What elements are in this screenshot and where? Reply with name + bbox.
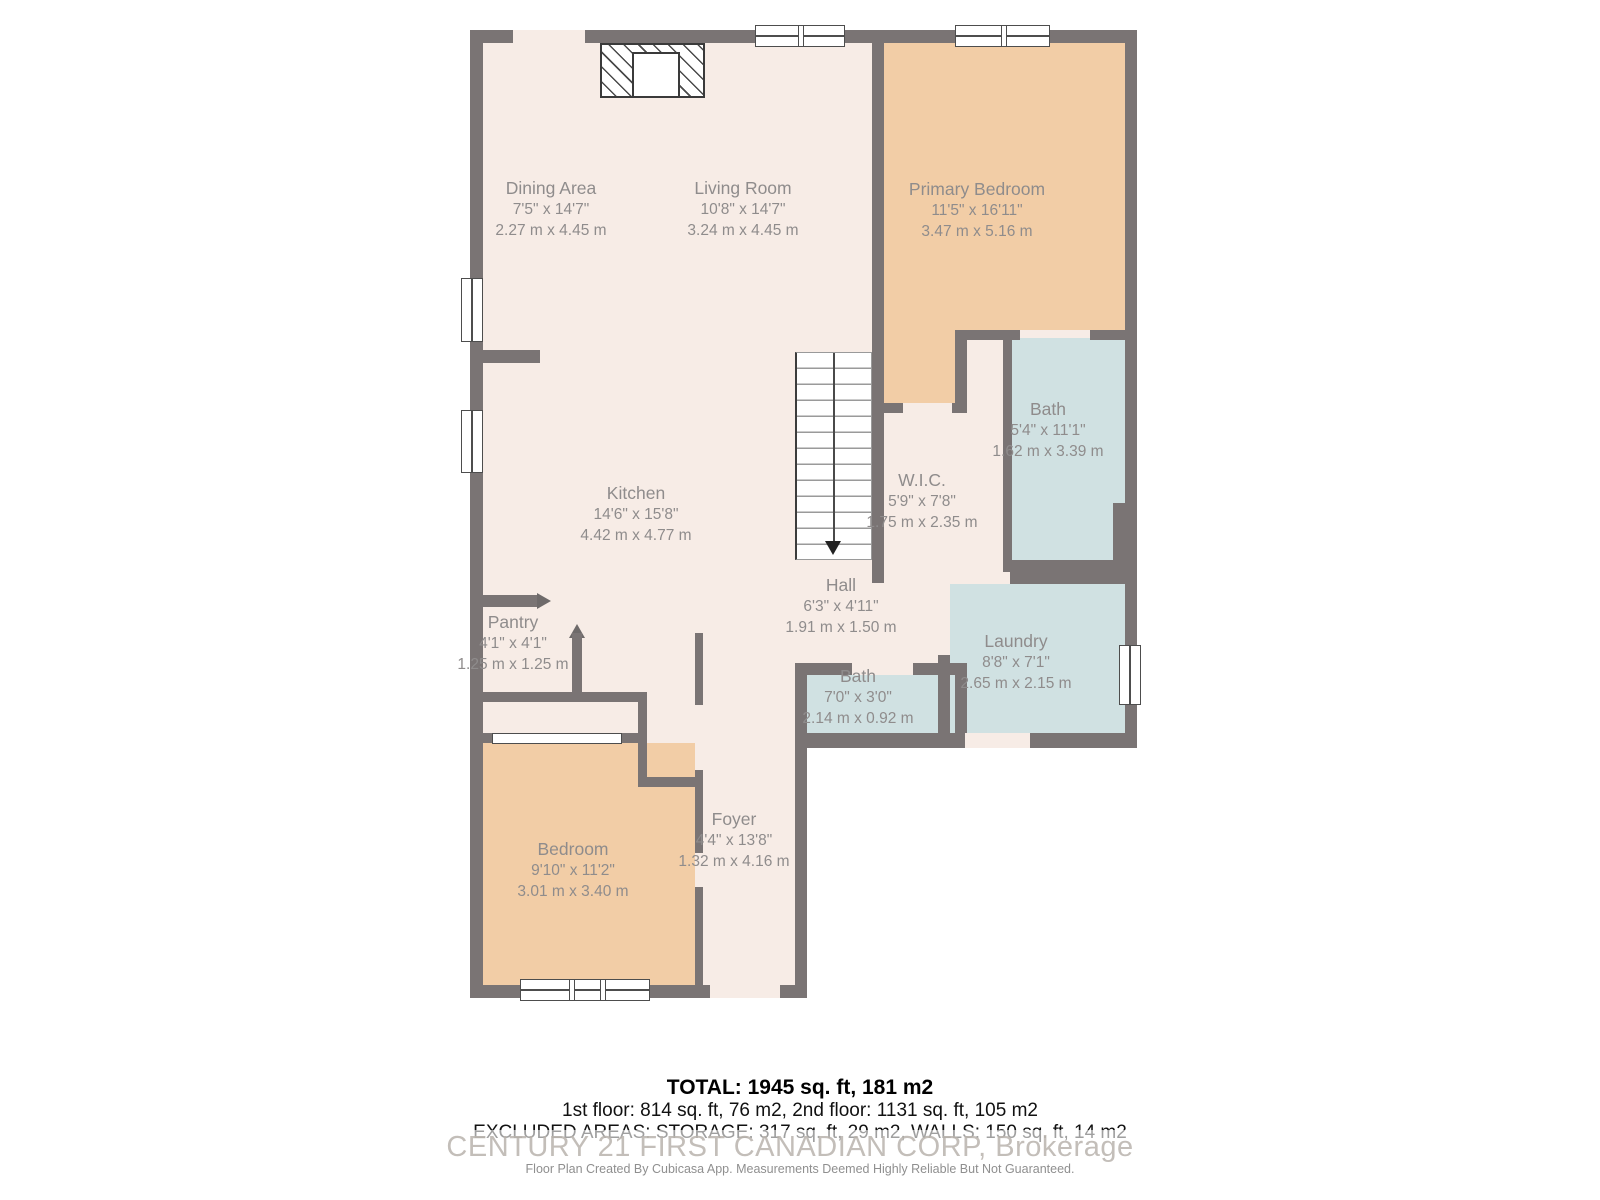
room-dim-m: 2.65 m x 2.15 m xyxy=(960,674,1071,695)
room-dim-ft: 7'5" x 14'7" xyxy=(495,200,606,221)
room-dim-ft: 5'4" x 11'1" xyxy=(992,421,1103,442)
room-name: Kitchen xyxy=(580,481,691,505)
room-label-bath-upper: Bath 5'4" x 11'1" 1.62 m x 3.39 m xyxy=(992,397,1103,462)
room-fill-primary-bedroom-ext xyxy=(884,330,955,403)
room-name: Pantry xyxy=(457,610,568,634)
room-fill-bath-upper-lower xyxy=(1012,503,1113,560)
room-dim-m: 3.47 m x 5.16 m xyxy=(909,222,1045,243)
room-label-wic: W.I.C. 5'9" x 7'8" 1.75 m x 2.35 m xyxy=(866,468,977,533)
floor-plan-canvas: Dining Area 7'5" x 14'7" 2.27 m x 4.45 m… xyxy=(0,0,1600,1200)
room-name: Dining Area xyxy=(495,176,606,200)
room-dim-m: 2.27 m x 4.45 m xyxy=(495,221,606,242)
window-symbol xyxy=(755,25,845,47)
room-name: W.I.C. xyxy=(866,468,977,492)
room-label-primary-bedroom: Primary Bedroom 11'5" x 16'11" 3.47 m x … xyxy=(909,177,1045,242)
room-name: Laundry xyxy=(960,629,1071,653)
room-label-pantry: Pantry 4'1" x 4'1" 1.25 m x 1.25 m xyxy=(457,610,568,675)
room-dim-m: 1.62 m x 3.39 m xyxy=(992,442,1103,463)
fireplace-firebox-icon xyxy=(632,52,680,98)
room-name: Bath xyxy=(802,664,913,688)
window-symbol xyxy=(1119,645,1141,705)
window-symbol xyxy=(520,979,650,1001)
staircase xyxy=(795,352,872,560)
room-name: Foyer xyxy=(678,807,789,831)
room-dim-m: 1.32 m x 4.16 m xyxy=(678,852,789,873)
room-dim-m: 3.24 m x 4.45 m xyxy=(687,221,798,242)
room-name: Living Room xyxy=(687,176,798,200)
room-dim-ft: 9'10" x 11'2" xyxy=(517,861,628,882)
room-label-dining: Dining Area 7'5" x 14'7" 2.27 m x 4.45 m xyxy=(495,176,606,241)
room-dim-ft: 11'5" x 16'11" xyxy=(909,201,1045,222)
room-dim-m: 2.14 m x 0.92 m xyxy=(802,709,913,730)
window-symbol xyxy=(461,278,483,342)
room-label-bath-main: Bath 7'0" x 3'0" 2.14 m x 0.92 m xyxy=(802,664,913,729)
room-label-living: Living Room 10'8" x 14'7" 3.24 m x 4.45 … xyxy=(687,176,798,241)
room-dim-m: 1.25 m x 1.25 m xyxy=(457,655,568,676)
room-dim-ft: 10'8" x 14'7" xyxy=(687,200,798,221)
room-dim-ft: 7'0" x 3'0" xyxy=(802,688,913,709)
room-label-laundry: Laundry 8'8" x 7'1" 2.65 m x 2.15 m xyxy=(960,629,1071,694)
room-dim-m: 4.42 m x 4.77 m xyxy=(580,526,691,547)
room-name: Bedroom xyxy=(517,837,628,861)
window-symbol xyxy=(461,410,483,473)
room-dim-ft: 5'9" x 7'8" xyxy=(866,492,977,513)
room-label-hall: Hall 6'3" x 4'11" 1.91 m x 1.50 m xyxy=(785,573,896,638)
disclaimer-text: Floor Plan Created By Cubicasa App. Meas… xyxy=(0,1162,1600,1176)
window-symbol xyxy=(955,25,1050,47)
brokerage-watermark: CENTURY 21 FIRST CANADIAN CORP, Brokerag… xyxy=(425,1130,1155,1164)
room-dim-ft: 14'6" x 15'8" xyxy=(580,505,691,526)
closet-sliding-door-symbol xyxy=(492,733,622,744)
summary-floors: 1st floor: 814 sq. ft, 76 m2, 2nd floor:… xyxy=(0,1100,1600,1122)
room-label-bedroom: Bedroom 9'10" x 11'2" 3.01 m x 3.40 m xyxy=(517,837,628,902)
brokerage-watermark-text: CENTURY 21 FIRST CANADIAN CORP, Brokerag… xyxy=(425,1130,1155,1164)
summary-total: TOTAL: 1945 sq. ft, 181 m2 xyxy=(0,1076,1600,1100)
stair-center-line xyxy=(833,353,835,543)
room-label-kitchen: Kitchen 14'6" x 15'8" 4.42 m x 4.77 m xyxy=(580,481,691,546)
room-dim-ft: 4'1" x 4'1" xyxy=(457,634,568,655)
room-dim-m: 3.01 m x 3.40 m xyxy=(517,882,628,903)
room-dim-ft: 4'4" x 13'8" xyxy=(678,831,789,852)
room-dim-m: 1.91 m x 1.50 m xyxy=(785,618,896,639)
stair-down-arrow-icon xyxy=(825,541,841,555)
room-label-foyer: Foyer 4'4" x 13'8" 1.32 m x 4.16 m xyxy=(678,807,789,872)
room-dim-ft: 6'3" x 4'11" xyxy=(785,597,896,618)
room-dim-ft: 8'8" x 7'1" xyxy=(960,653,1071,674)
room-name: Primary Bedroom xyxy=(909,177,1045,201)
room-name: Bath xyxy=(992,397,1103,421)
room-dim-m: 1.75 m x 2.35 m xyxy=(866,513,977,534)
entry-arrow-right-icon xyxy=(537,593,551,609)
room-name: Hall xyxy=(785,573,896,597)
